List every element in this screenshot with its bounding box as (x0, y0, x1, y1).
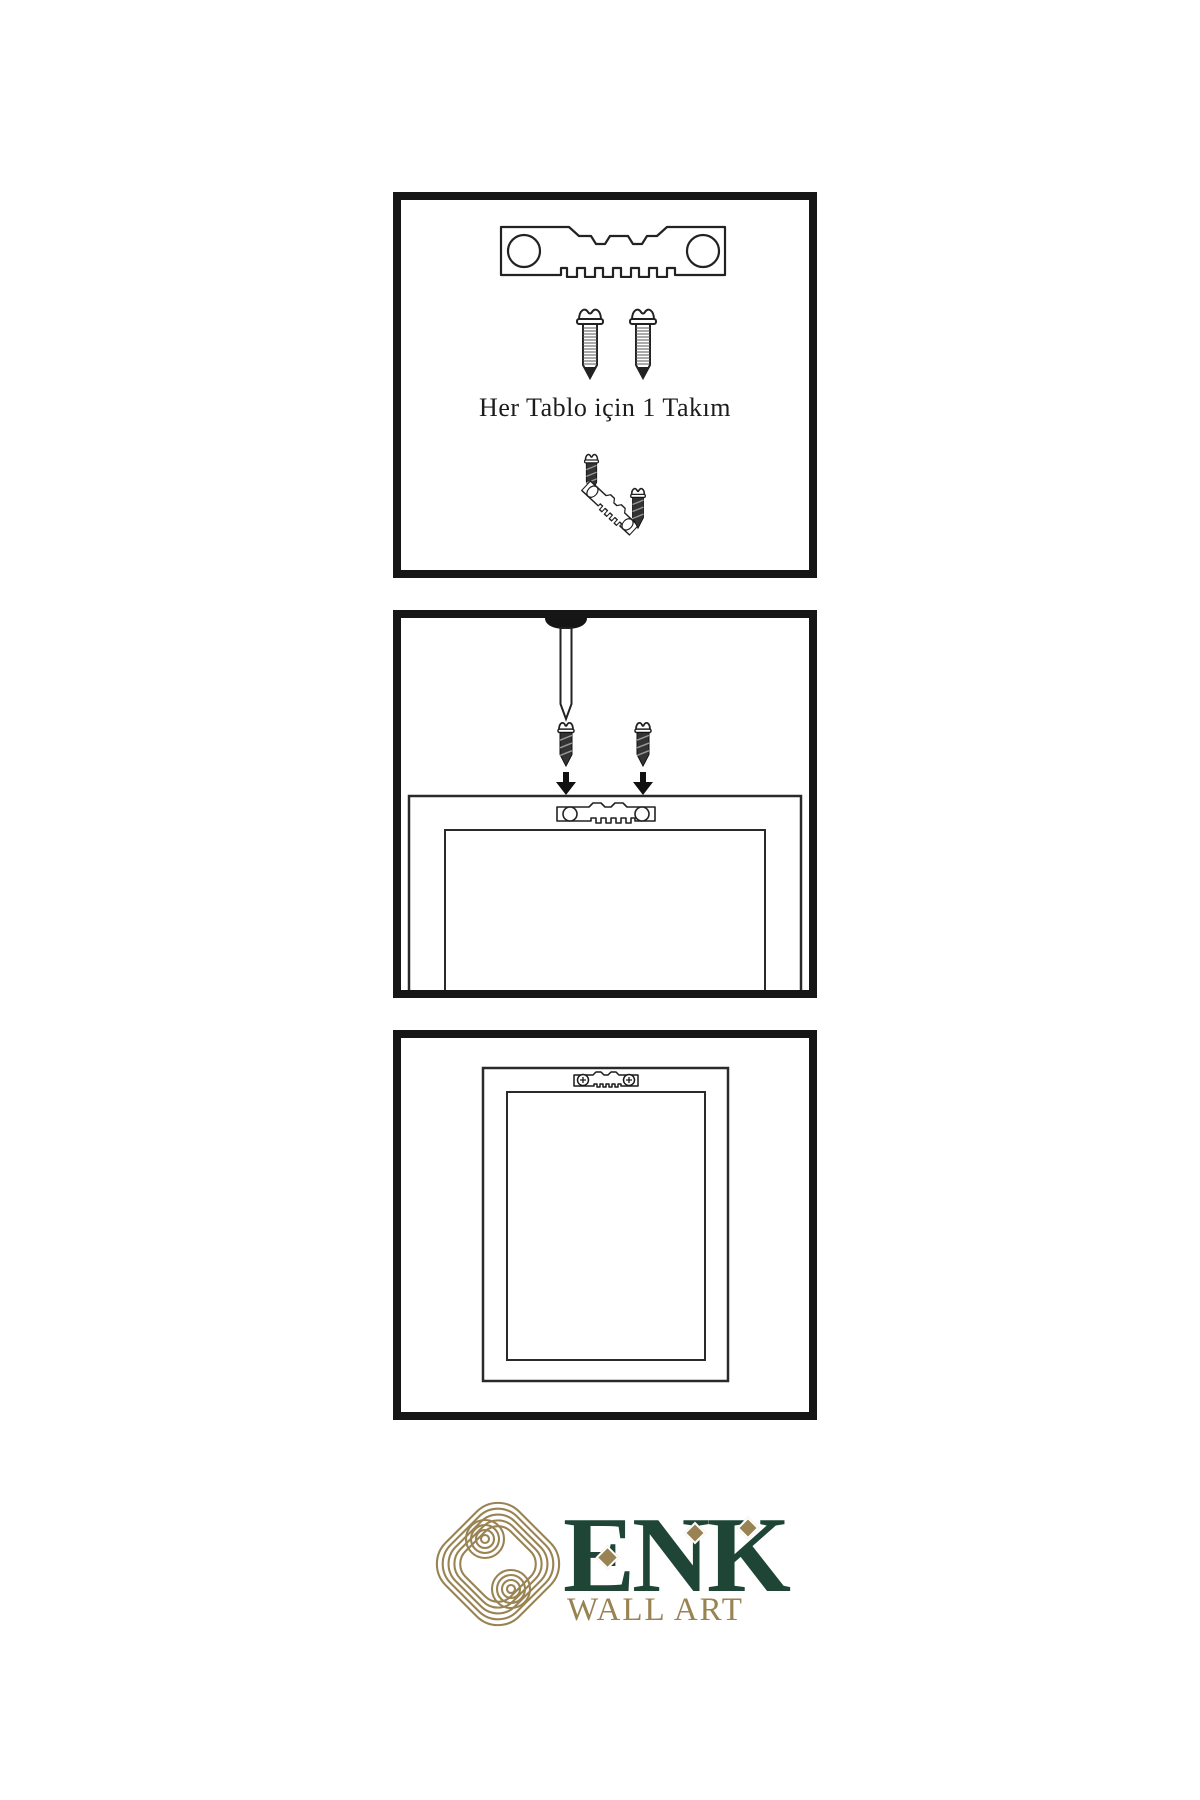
step-panel-3-content (401, 1038, 809, 1412)
arrow-down-icon (633, 772, 653, 795)
step-panel-1: Her Tablo için 1 Takım (393, 192, 817, 578)
step-panel-1-content: Her Tablo için 1 Takım (401, 200, 809, 570)
hardware-kit-drawing (401, 200, 809, 570)
step-panel-3 (393, 1030, 817, 1420)
instruction-sheet: Her Tablo için 1 Takım (0, 0, 1200, 1800)
knot-logo-icon (433, 1495, 563, 1633)
kit-caption: Her Tablo için 1 Takım (401, 393, 809, 423)
sawtooth-hanger-angled-icon (580, 478, 640, 536)
step-panel-2 (393, 610, 817, 998)
sawtooth-hanger-icon (501, 227, 725, 277)
arrow-down-icon (556, 772, 576, 795)
frame-inner-outline (445, 830, 765, 990)
screw-icon (635, 723, 651, 766)
wall-nail-icon (545, 618, 587, 719)
step-panel-2-content (401, 618, 809, 990)
hung-frame-drawing (401, 1038, 809, 1412)
attached-hanger-icon (574, 1072, 638, 1087)
screw-icon (558, 723, 574, 766)
brand-tagline: WALL ART (567, 1594, 744, 1627)
screw-icon (630, 310, 656, 378)
angled-hanger-assembly (580, 454, 645, 536)
screw-icon (577, 310, 603, 378)
mounting-step-drawing (401, 618, 809, 990)
frame-inner-outline (507, 1092, 705, 1360)
